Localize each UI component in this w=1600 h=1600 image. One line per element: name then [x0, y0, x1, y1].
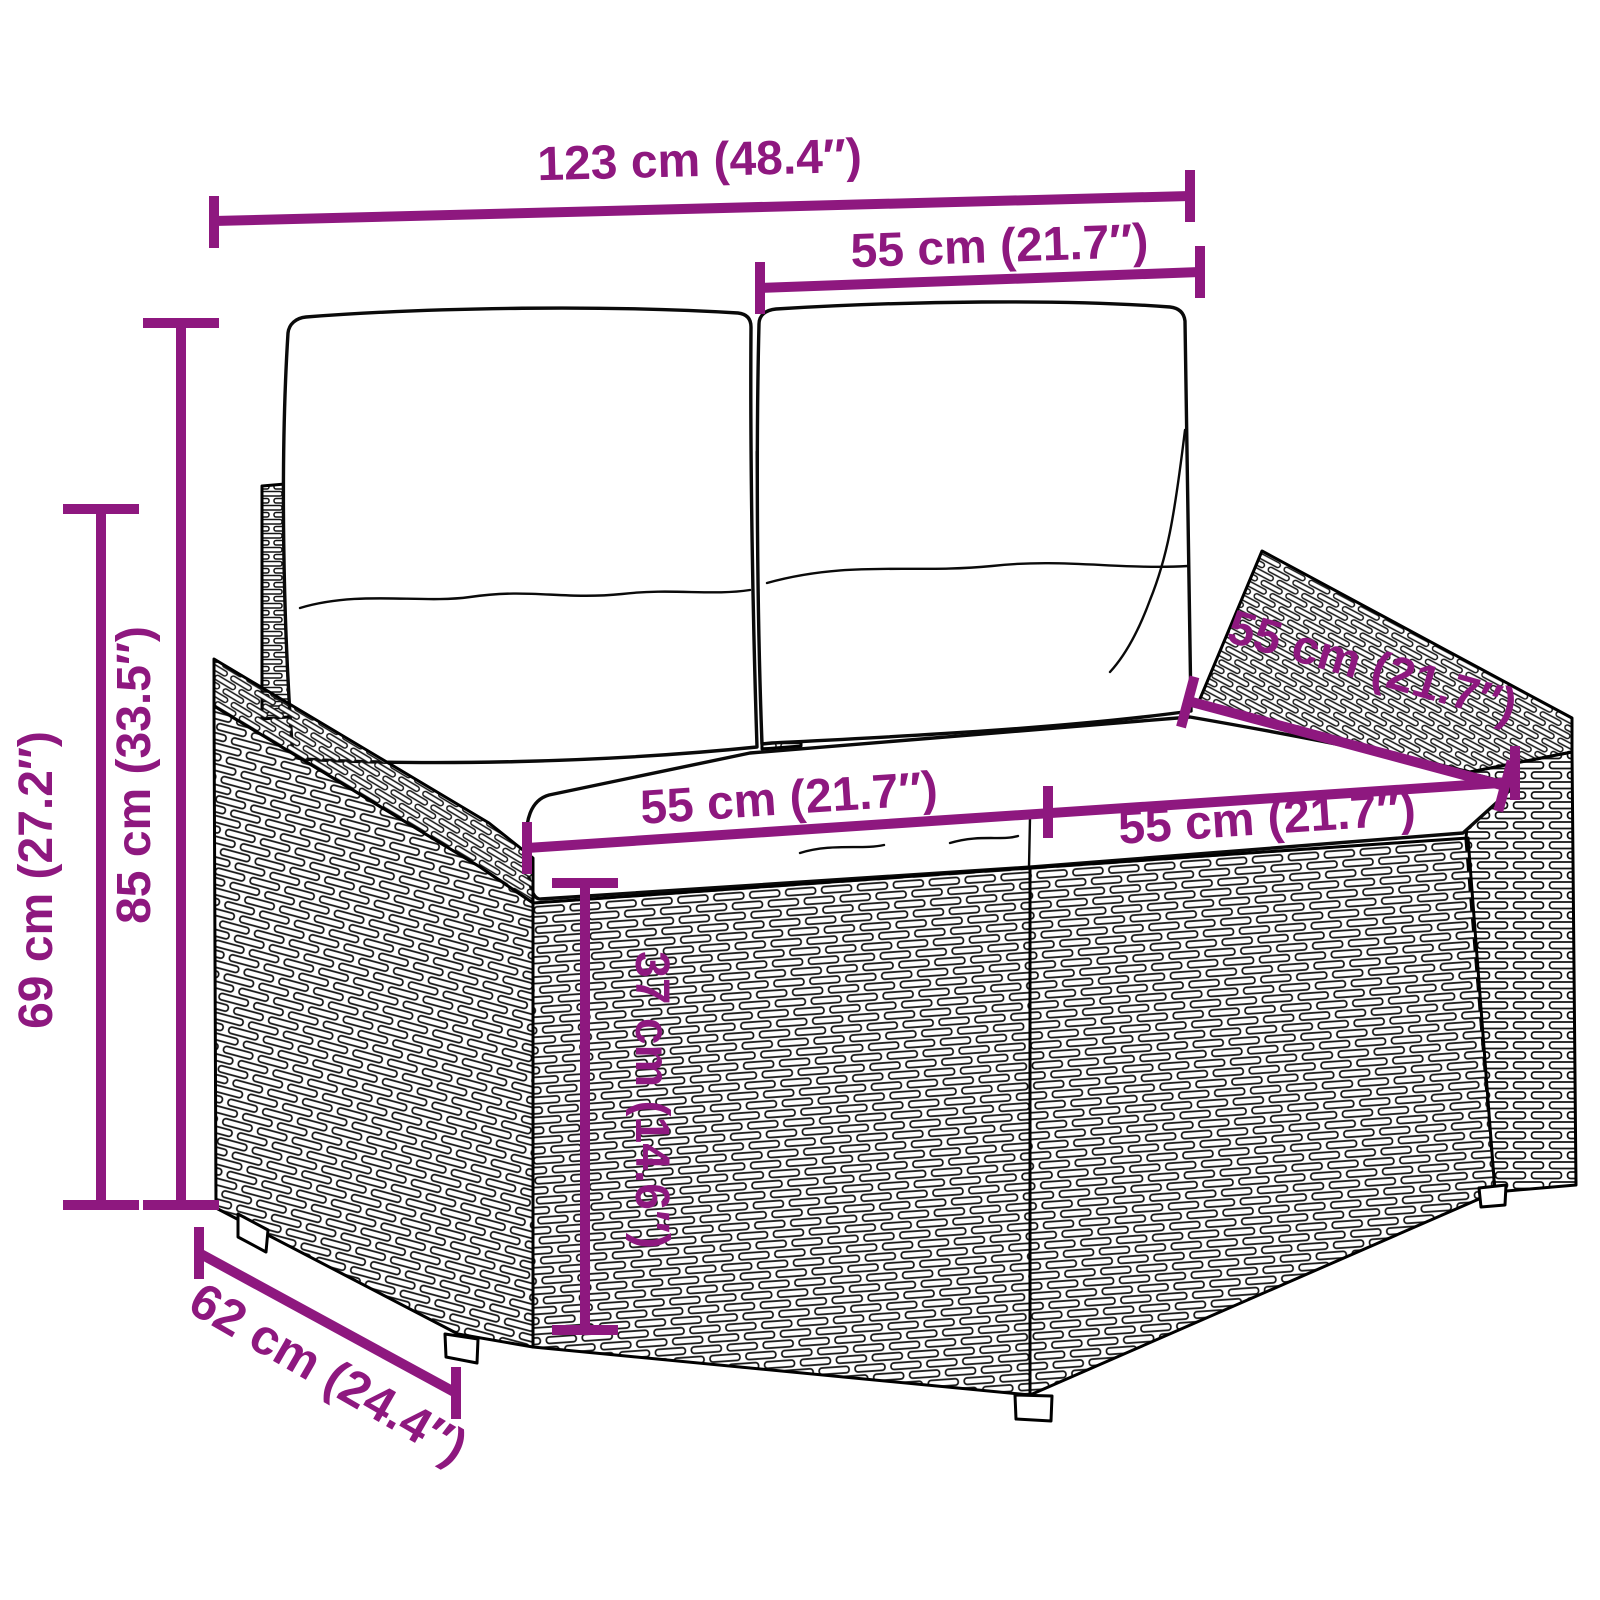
back-cushion-left: [283, 308, 757, 762]
overall-width-label: 123 cm (48.4″): [537, 130, 863, 191]
back-cushion-right: [757, 302, 1191, 744]
sofa-illustration: [214, 302, 1576, 1421]
dimension-total-height: 85 cm (33.5″): [108, 323, 219, 1205]
seat-box-left-front: [533, 868, 1030, 1395]
dimension-backrest-width: 55 cm (21.7″): [760, 215, 1200, 314]
seat-cushion-seam: [1029, 818, 1030, 867]
diagram-canvas: 123 cm (48.4″) 55 cm (21.7″) 85 cm (33.5…: [0, 0, 1600, 1600]
sofa-foot-middle: [1015, 1395, 1052, 1421]
backrest-width-label: 55 cm (21.7″): [850, 215, 1149, 278]
total-height-label: 85 cm (33.5″): [108, 626, 161, 924]
seat-box-right-front: [1030, 838, 1495, 1395]
backrest-width-line: [760, 272, 1200, 288]
overall-width-line: [214, 196, 1190, 221]
sofa-foot-front-left: [445, 1334, 478, 1363]
seat-height-label: 37 cm (14.6″): [625, 951, 678, 1249]
sofa-foot-right: [1479, 1185, 1506, 1207]
dimension-diagram: 123 cm (48.4″) 55 cm (21.7″) 85 cm (33.5…: [0, 0, 1600, 1600]
armrest-height-label: 69 cm (27.2″): [10, 731, 63, 1029]
